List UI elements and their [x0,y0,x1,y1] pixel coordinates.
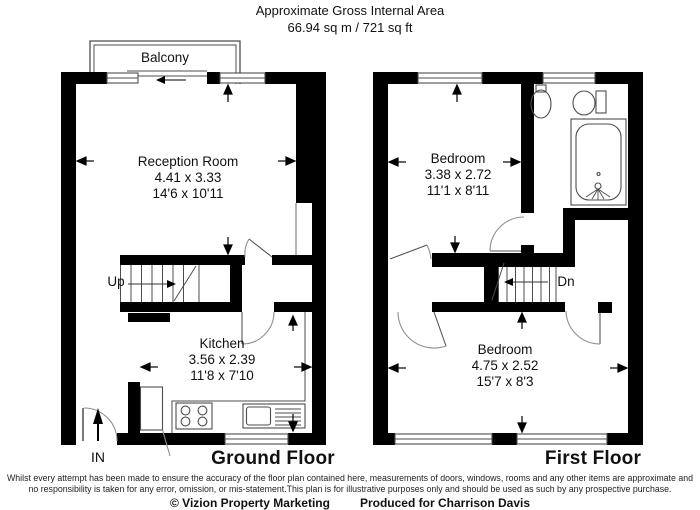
bedroom-back-label: Bedroom 4.75 x 2.52 15'7 x 8'3 [435,342,575,390]
room-name: Bedroom [388,151,528,167]
ground-floor-walls [61,72,326,445]
produced-by-text: Produced for Charrison Davis [360,496,530,510]
stairs-up-label: Up [100,274,132,289]
room-metric: 3.56 x 2.39 [152,352,292,368]
floorplan-drawing [0,0,700,510]
room-imperial: 11'1 x 8'11 [388,183,528,199]
room-metric: 4.41 x 3.33 [118,170,258,186]
ground-floor-title: Ground Floor [192,448,354,470]
room-metric: 4.75 x 2.52 [435,358,575,374]
toilet-icon [573,91,606,115]
reception-room-label: Reception Room 4.41 x 3.33 14'6 x 10'11 [118,154,258,202]
credit-line: © Vizion Property MarketingProduced for … [0,496,700,510]
room-name: Kitchen [152,336,292,352]
closet [141,387,171,456]
footer: Whilst every attempt has been made to en… [0,473,700,510]
stairs-down-label: Dn [550,274,582,289]
room-name: Bedroom [435,342,575,358]
kitchen-label: Kitchen 3.56 x 2.39 11'8 x 7'10 [152,336,292,384]
header-area: 66.94 sq m / 721 sq ft [0,20,700,35]
copyright-text: © Vizion Property Marketing [170,496,330,510]
disclaimer-line-1: Whilst every attempt has been made to en… [0,473,700,484]
balcony-label: Balcony [115,50,215,65]
bedroom-front-label: Bedroom 3.38 x 2.72 11'1 x 8'11 [388,151,528,199]
ground-floor-plan [61,41,326,456]
room-metric: 3.38 x 2.72 [388,167,528,183]
hob-icon [176,403,212,429]
first-floor-title: First Floor [512,448,674,470]
disclaimer-line-2: no responsibility is taken for any error… [0,484,700,495]
room-imperial: 14'6 x 10'11 [118,186,258,202]
page-title: Approximate Gross Internal Area [0,3,700,18]
bathtub-icon [571,119,626,205]
room-name: Reception Room [118,154,258,170]
room-imperial: 15'7 x 8'3 [435,374,575,390]
entrance-label: IN [85,449,111,465]
sliding-door-arrow-icon [156,76,186,84]
room-imperial: 11'8 x 7'10 [152,368,292,384]
floorplan-page: Approximate Gross Internal Area 66.94 sq… [0,0,700,510]
